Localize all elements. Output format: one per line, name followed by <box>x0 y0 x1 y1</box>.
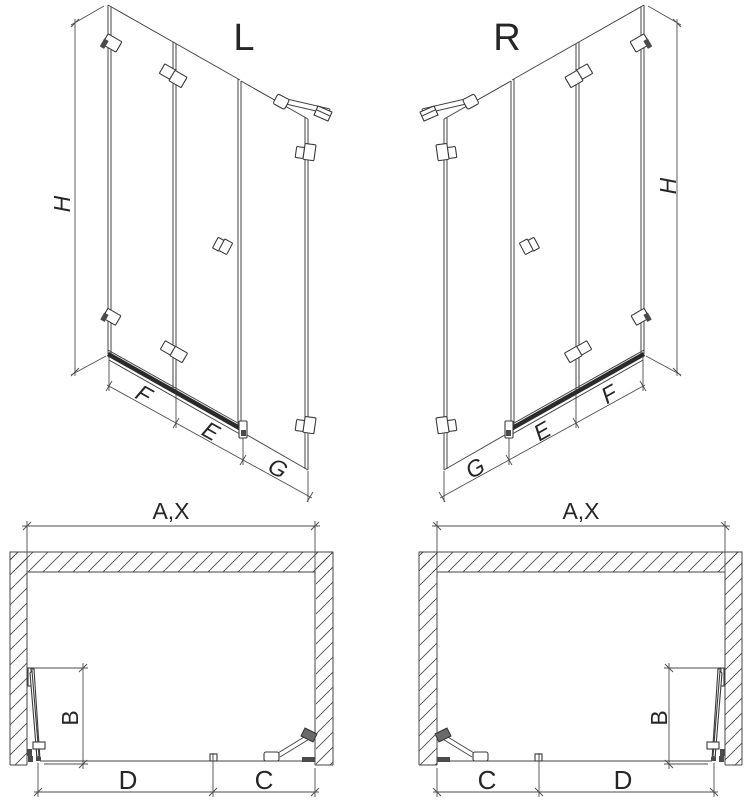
technical-drawing-page: L H F E G R H G E F A,X B D C A,X B C D <box>0 0 752 800</box>
dim-label-D-plan-right: D <box>614 765 633 795</box>
variant-label-right: R <box>493 17 520 59</box>
dim-label-C-plan-right: C <box>478 765 497 795</box>
dim-label-F-right: F <box>597 378 624 409</box>
elevation-left-view <box>71 5 332 502</box>
dim-label-E-left: E <box>198 416 225 447</box>
dim-label-E-right: E <box>529 416 556 447</box>
dim-label-D-plan-left: D <box>119 765 138 795</box>
wall-hatching <box>10 552 742 765</box>
dim-label-C-plan-left: C <box>255 765 274 795</box>
dim-label-height-right: H <box>655 177 681 194</box>
dim-label-F-left: F <box>131 379 158 410</box>
dim-label-B-plan-left: B <box>57 710 83 725</box>
elevation-right-view <box>420 5 681 502</box>
shower-screen-diagram: L H F E G R H G E F A,X B D C A,X B C D <box>0 0 752 800</box>
dim-label-width-plan-right: A,X <box>562 498 599 524</box>
dim-label-height-left: H <box>49 195 75 212</box>
variant-label-left: L <box>233 17 254 59</box>
dim-label-B-plan-right: B <box>646 710 672 725</box>
dim-label-width-plan-left: A,X <box>152 498 189 524</box>
labels: L H F E G R H G E F A,X B D C A,X B C D <box>49 17 681 795</box>
dim-label-G-right: G <box>461 452 489 483</box>
dim-label-G-left: G <box>264 452 292 483</box>
